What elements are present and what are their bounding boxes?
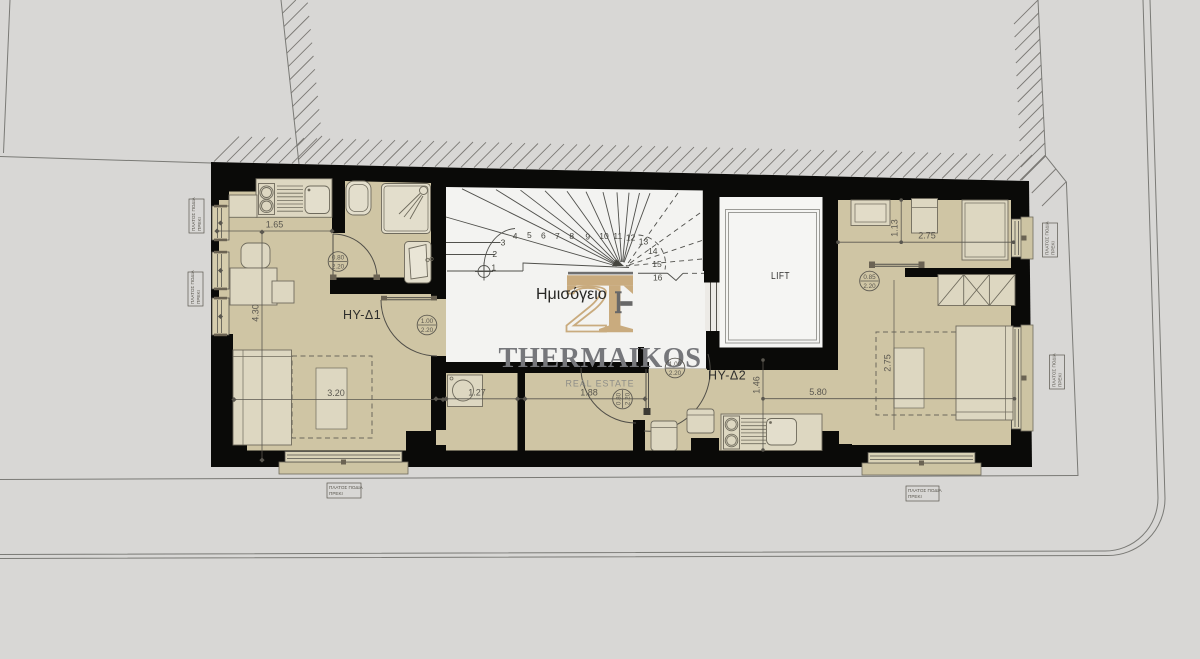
svg-text:0.85: 0.85	[863, 274, 876, 281]
svg-text:1.13: 1.13	[890, 219, 900, 237]
svg-text:2.20: 2.20	[332, 264, 345, 271]
svg-text:2.20: 2.20	[625, 392, 632, 405]
svg-text:ΠΛΑΤΟΣ ΠΟΔΙΑ: ΠΛΑΤΟΣ ΠΟΔΙΑ	[329, 485, 364, 490]
svg-text:2.75: 2.75	[883, 354, 893, 372]
svg-text:ΠΛΑΤΟΣ ΠΟΔΙΑ: ΠΛΑΤΟΣ ΠΟΔΙΑ	[908, 488, 943, 493]
svg-text:10: 10	[599, 231, 609, 241]
svg-text:ΠΛΑΤΟΣ ΠΟΔΙΑ: ΠΛΑΤΟΣ ΠΟΔΙΑ	[1052, 352, 1057, 387]
svg-text:ΠΛΑΤΟΣ ΠΟΔΙΑ: ΠΛΑΤΟΣ ΠΟΔΙΑ	[190, 269, 195, 304]
svg-text:1.00: 1.00	[669, 361, 682, 368]
svg-text:ΠΡΕΚΙ: ΠΡΕΚΙ	[197, 217, 202, 231]
svg-text:2.20: 2.20	[863, 283, 876, 290]
svg-text:HY-Δ1: HY-Δ1	[343, 308, 381, 322]
svg-text:4.30: 4.30	[251, 304, 261, 322]
svg-text:REAL ESTATE: REAL ESTATE	[566, 379, 635, 390]
svg-text:HY-Δ2: HY-Δ2	[708, 369, 746, 383]
svg-text:7: 7	[555, 231, 560, 241]
svg-text:1.46: 1.46	[752, 376, 762, 394]
svg-text:ΠΡΕΚΙ: ΠΡΕΚΙ	[1051, 241, 1056, 255]
svg-text:1.88: 1.88	[580, 387, 598, 397]
svg-text:13: 13	[639, 237, 649, 247]
svg-text:LIFT: LIFT	[771, 271, 790, 282]
svg-text:15: 15	[652, 259, 662, 269]
svg-text:ΠΡΕΚΙ: ΠΡΕΚΙ	[196, 290, 201, 304]
svg-text:ΠΛΑΤΟΣ ΠΟΔΙΑ: ΠΛΑΤΟΣ ΠΟΔΙΑ	[191, 196, 196, 231]
svg-text:1.27: 1.27	[468, 387, 486, 397]
svg-text:2.75: 2.75	[918, 231, 936, 241]
svg-text:0.80: 0.80	[616, 392, 623, 405]
svg-text:ΠΛΑΤΟΣ ΠΟΔΙΑ: ΠΛΑΤΟΣ ΠΟΔΙΑ	[1045, 220, 1050, 255]
svg-text:2.20: 2.20	[421, 327, 434, 334]
svg-text:1: 1	[491, 263, 496, 273]
svg-text:12: 12	[626, 233, 636, 243]
svg-text:1.00: 1.00	[421, 318, 434, 325]
svg-text:0.80: 0.80	[332, 255, 345, 262]
svg-text:16: 16	[653, 273, 663, 283]
svg-text:5: 5	[527, 230, 532, 240]
svg-text:ΠΡΕΚΙ: ΠΡΕΚΙ	[908, 494, 922, 499]
svg-text:9: 9	[585, 232, 590, 242]
svg-text:2.20: 2.20	[669, 370, 682, 377]
svg-text:11: 11	[613, 231, 622, 241]
svg-text:ΠΡΕΚΙ: ΠΡΕΚΙ	[329, 491, 343, 496]
svg-text:3: 3	[501, 238, 506, 248]
svg-text:6: 6	[541, 231, 546, 241]
svg-text:4: 4	[513, 231, 518, 241]
svg-text:8: 8	[569, 231, 574, 241]
svg-text:Ημισόγειο: Ημισόγειο	[536, 286, 607, 303]
svg-text:2: 2	[492, 249, 497, 259]
svg-text:1.65: 1.65	[266, 220, 284, 230]
svg-text:ΠΡΕΚΙ: ΠΡΕΚΙ	[1058, 373, 1063, 387]
svg-text:14: 14	[648, 246, 658, 256]
svg-text:3.20: 3.20	[327, 388, 345, 398]
svg-text:5.80: 5.80	[809, 387, 827, 397]
